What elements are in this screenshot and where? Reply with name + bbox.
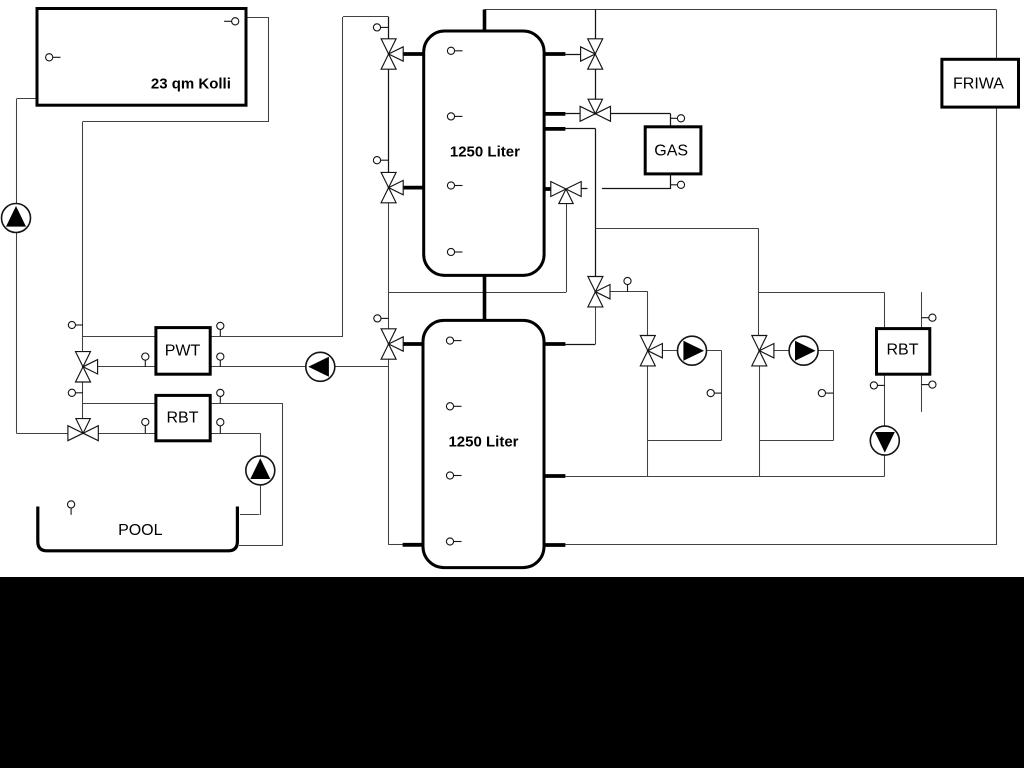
svg-text:FRIWA: FRIWA	[953, 75, 1004, 92]
svg-text:23 qm Kolli: 23 qm Kolli	[151, 76, 231, 93]
svg-text:POOL: POOL	[118, 522, 163, 539]
svg-text:RBT: RBT	[887, 342, 919, 359]
svg-text:GAS: GAS	[654, 142, 688, 159]
svg-text:RBT: RBT	[167, 410, 199, 427]
svg-text:1250 Liter: 1250 Liter	[448, 433, 518, 450]
svg-text:PWT: PWT	[165, 343, 201, 360]
svg-text:1250 Liter: 1250 Liter	[450, 144, 520, 161]
